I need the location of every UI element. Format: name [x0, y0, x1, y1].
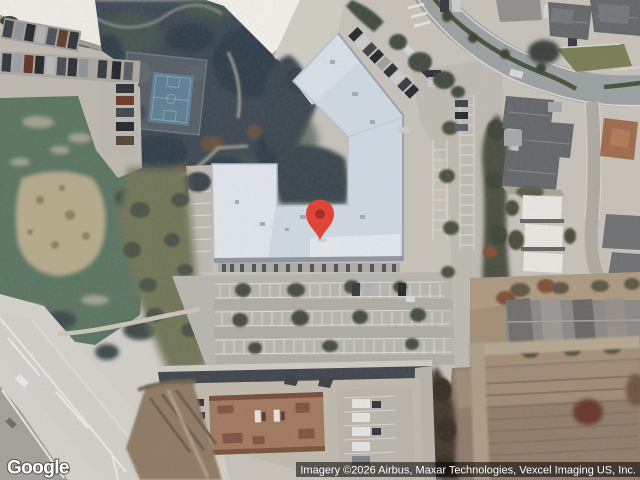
svg-text:Google: Google	[7, 458, 69, 479]
svg-text:Imagery ©2026 Airbus, Maxar Te: Imagery ©2026 Airbus, Maxar Technologies…	[300, 465, 636, 477]
